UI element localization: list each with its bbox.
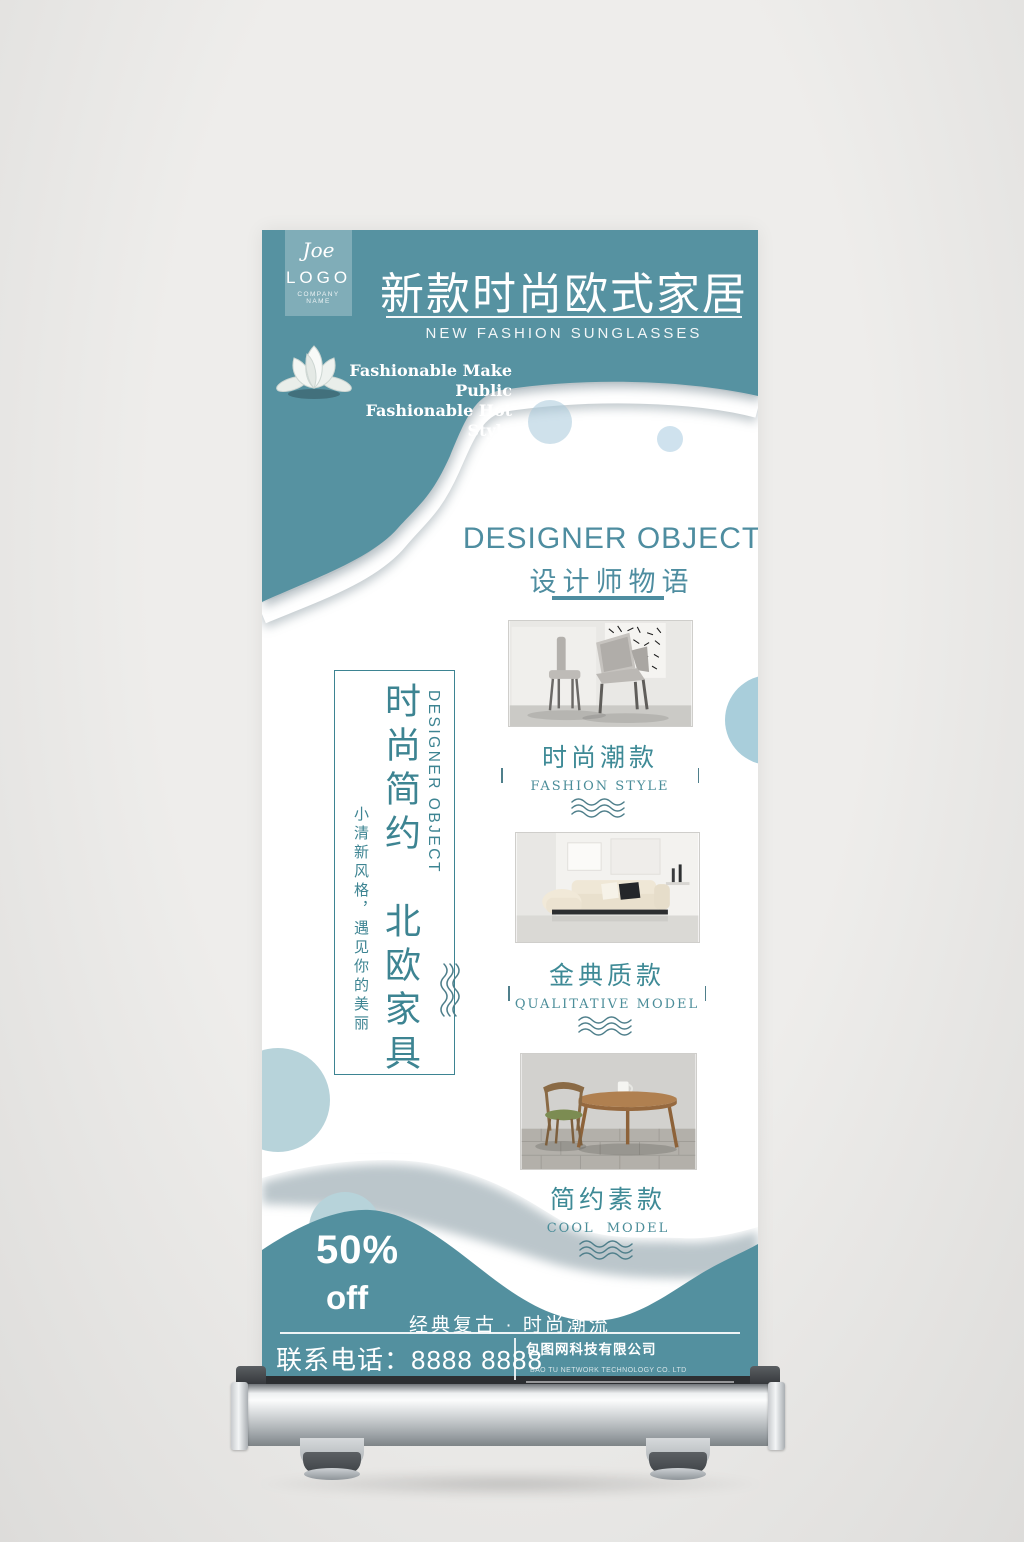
caption-bar-left bbox=[501, 768, 503, 783]
company-name-en: BAO TU NETWORK TECHNOLOGY CO. LTD bbox=[530, 1367, 687, 1374]
vertical-subline: 小清新风格，遇见你的美丽 bbox=[350, 806, 371, 1034]
vertical-side-text: DESIGNER OBJECT bbox=[424, 690, 442, 874]
product-name-en: COOL MODEL bbox=[503, 1221, 713, 1236]
company-name-zh: 包图网科技有限公司 bbox=[526, 1338, 657, 1358]
stand-foot-base-left bbox=[304, 1468, 360, 1480]
deco-circle-right bbox=[725, 675, 758, 765]
fine-print-line bbox=[526, 1381, 734, 1383]
wavy-lines-vertical-icon bbox=[440, 961, 460, 1023]
logo-company-name: COMPANY NAME bbox=[285, 291, 352, 305]
product-name-zh: 金典质款 bbox=[502, 956, 712, 992]
wavy-lines-icon bbox=[577, 1240, 639, 1260]
wavy-lines-icon bbox=[569, 798, 631, 818]
product-photo-qualitative-model bbox=[515, 832, 700, 943]
product-caption-3: 简约素款 COOL MODEL bbox=[503, 1180, 713, 1260]
logo-signature: Joe bbox=[285, 238, 352, 262]
banner-subtitle: NEW FASHION SUNGLASSES bbox=[380, 325, 748, 342]
slogan-line1: Fashionable Make Public bbox=[322, 361, 512, 401]
promo-percent: 50% bbox=[316, 1228, 399, 1273]
contact-phone: 联系电话：8888 8888 bbox=[276, 1340, 543, 1377]
mockup-scene: Joe LOGO COMPANY NAME 新款时尚欧式家居 NEW FASHI… bbox=[0, 0, 1024, 1542]
rollup-banner: Joe LOGO COMPANY NAME 新款时尚欧式家居 NEW FASHI… bbox=[262, 230, 758, 1383]
banner-title: 新款时尚欧式家居 bbox=[380, 258, 748, 322]
slogan: Fashionable Make Public Fashionable Hot … bbox=[322, 361, 512, 441]
deco-circle-left bbox=[262, 1048, 330, 1152]
stand-roller-cylinder bbox=[245, 1384, 771, 1446]
footer-divider-line bbox=[280, 1332, 740, 1334]
product-name-en: FASHION STYLE bbox=[495, 779, 705, 794]
stand-foot-base-right bbox=[650, 1468, 706, 1480]
product-photo-cool-model bbox=[520, 1053, 697, 1170]
product-caption-1: 时尚潮款 FASHION STYLE bbox=[495, 738, 705, 818]
product-name-en: QUALITATIVE MODEL bbox=[502, 997, 712, 1012]
vertical-headline: 时尚简约 北欧家具 bbox=[374, 682, 426, 1078]
product-name-zh: 简约素款 bbox=[503, 1180, 713, 1216]
footer-vertical-divider bbox=[514, 1338, 516, 1380]
company-info: 包图网科技有限公司BAO TU NETWORK TECHNOLOGY CO. L… bbox=[526, 1338, 752, 1383]
section-title-zh: 设计师物语 bbox=[462, 560, 758, 599]
stand-side-plate-left bbox=[231, 1382, 248, 1450]
caption-bar-right bbox=[698, 768, 700, 783]
logo-name: LOGO bbox=[285, 268, 352, 288]
logo: Joe LOGO COMPANY NAME bbox=[285, 230, 352, 316]
title-underline bbox=[386, 316, 742, 318]
promo-discount: 50% off bbox=[316, 1228, 399, 1317]
deco-circle-small bbox=[657, 426, 683, 452]
section-title-en: DESIGNER OBJECT bbox=[462, 522, 758, 556]
slogan-line2: Fashionable Hot Style bbox=[322, 401, 512, 441]
product-photo-fashion-style bbox=[508, 620, 693, 727]
caption-bar-left bbox=[508, 986, 510, 1001]
product-name-zh: 时尚潮款 bbox=[495, 738, 705, 774]
product-caption-2: 金典质款 QUALITATIVE MODEL bbox=[502, 956, 712, 1036]
caption-bar-right bbox=[705, 986, 707, 1001]
wavy-lines-icon bbox=[576, 1016, 638, 1036]
deco-circle-large-translucent bbox=[528, 400, 572, 444]
stand-side-plate-right bbox=[768, 1382, 785, 1450]
section-heading: DESIGNER OBJECT 设计师物语 bbox=[462, 522, 758, 599]
section-underline bbox=[552, 596, 664, 600]
